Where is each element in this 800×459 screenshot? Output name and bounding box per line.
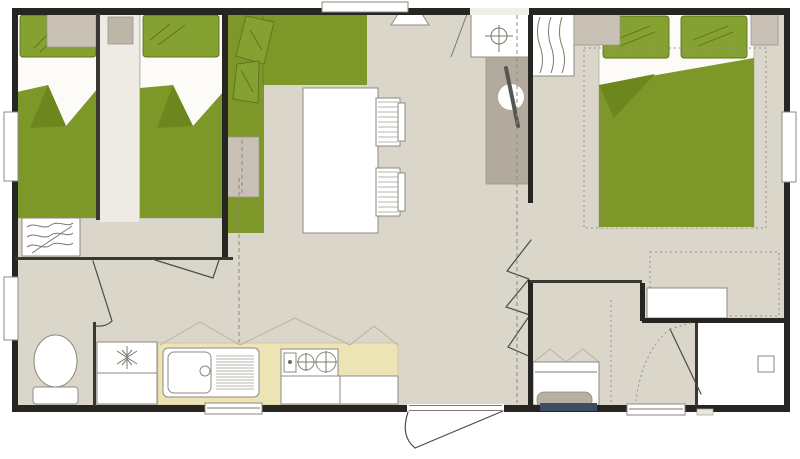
bed-partition xyxy=(96,13,100,220)
shower-drain xyxy=(758,356,774,372)
hob-knob xyxy=(288,360,292,364)
wall-right xyxy=(784,8,790,412)
double-bed-pillow-right xyxy=(681,16,747,58)
chair-1-back xyxy=(398,103,405,141)
toilet-tank xyxy=(33,387,78,404)
window-top-gap xyxy=(470,8,529,15)
washroom-mat xyxy=(540,403,597,411)
window-left-1 xyxy=(4,112,18,181)
bedside-table-twin xyxy=(108,17,133,44)
window-top xyxy=(322,2,408,12)
sofa-cushion-2 xyxy=(233,61,259,103)
roof-vent-box xyxy=(471,13,529,57)
wall-hall-bottom xyxy=(528,280,533,406)
base-cabinet-2 xyxy=(340,376,398,404)
window-sill-small xyxy=(697,409,713,415)
wall-washroom-step xyxy=(640,283,645,321)
shower-room xyxy=(698,323,784,405)
overhead-shelf xyxy=(47,14,96,47)
side-table xyxy=(226,137,259,197)
window-right xyxy=(782,112,796,182)
wall-bedroom-bottom xyxy=(15,257,233,260)
base-cabinet-1 xyxy=(281,376,340,404)
entrance-door-arc xyxy=(405,412,415,448)
wall-left xyxy=(12,8,18,412)
entrance-door-leaf xyxy=(415,411,503,448)
wc xyxy=(33,335,78,404)
window-left-2 xyxy=(4,277,18,340)
sink-tap xyxy=(200,366,210,376)
wall-heater-icon xyxy=(391,14,429,25)
wall-shower-left xyxy=(695,323,698,406)
wall-shower-top xyxy=(642,318,790,323)
dining-table xyxy=(303,88,378,233)
chair-2-back xyxy=(398,173,405,211)
wall-washroom-top xyxy=(530,280,642,283)
toilet-bowl xyxy=(34,335,77,387)
wall-hall-top xyxy=(528,13,533,203)
floor-plan-canvas xyxy=(0,0,800,459)
bedside-table-left xyxy=(574,13,620,45)
wall-wc-right xyxy=(93,322,96,406)
bedside-table-right xyxy=(751,13,778,45)
wall-bedroom-divider xyxy=(222,13,228,259)
floor-plan-drawing xyxy=(0,0,800,459)
storage-bench xyxy=(647,288,727,318)
fridge-cabinet xyxy=(97,373,157,404)
